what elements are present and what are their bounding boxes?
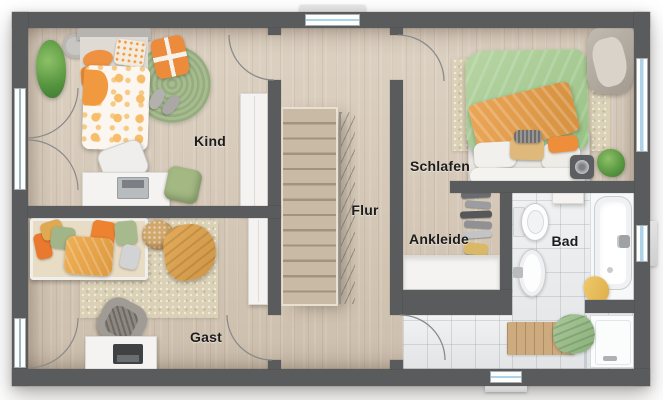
clothes-rack: [456, 188, 502, 262]
floor-cushion-green: [163, 165, 203, 205]
daybed-gast: [30, 218, 148, 280]
tub-faucet: [619, 235, 630, 248]
desk-gast: [85, 336, 157, 370]
window-sill-bad-east: [649, 221, 657, 266]
floor-plan: Kind Flur Schlafen Ankleide Bad Gast: [12, 12, 650, 386]
window-schlafen: [636, 58, 648, 152]
wall-kind-flur-stub-top: [268, 28, 281, 35]
laptop-kind-screen: [122, 180, 144, 188]
wall-flur-bad-stub-bottom: [390, 360, 403, 369]
room-label-schlafen: Schlafen: [410, 158, 470, 174]
staircase: [281, 107, 338, 306]
speaker-cone: [575, 160, 589, 174]
clothes-item: [460, 210, 492, 218]
wall-ankleide-bad: [500, 193, 512, 292]
wardrobe-gast: [248, 217, 268, 305]
wall-flur-schlafen: [390, 80, 403, 315]
pillow-gray: [119, 243, 142, 270]
pillow-orange-accent: [547, 134, 579, 153]
sink-faucet: [513, 267, 523, 278]
plant-kind: [36, 40, 66, 98]
window-gast: [14, 318, 26, 368]
toilet-seat: [527, 210, 544, 234]
sink: [513, 249, 545, 297]
wall-kind-gast: [28, 206, 281, 218]
pillow-dotted: [113, 38, 146, 68]
window-bad-south: [490, 371, 522, 383]
shower-drain: [603, 356, 617, 361]
room-label-bad: Bad: [551, 233, 578, 249]
floor-plan-canvas: Kind Flur Schlafen Ankleide Bad Gast: [0, 0, 663, 400]
room-label-kind: Kind: [194, 133, 226, 149]
toilet: [513, 203, 547, 239]
lounge-chair-drape: [587, 28, 634, 94]
clothes-item: [464, 220, 492, 228]
wall-tub-shower-divider: [585, 300, 634, 313]
floor-bathroom-entry-tile: [403, 315, 512, 369]
room-label-ankleide: Ankleide: [409, 231, 469, 247]
window-bad-east: [636, 225, 648, 262]
shower: [590, 315, 634, 368]
speaker: [570, 155, 594, 179]
wall-schlafen-bad: [450, 181, 634, 193]
laptop-kind: [117, 177, 149, 199]
window-kind-balcony-door: [14, 88, 26, 190]
wall-gast-flur-stub-bottom: [268, 360, 281, 369]
blanket-daybed: [64, 235, 115, 276]
wardrobe-ankleide: [403, 255, 500, 290]
plant-schlafen: [597, 149, 625, 177]
room-label-gast: Gast: [190, 329, 222, 345]
wall-kind-flur: [268, 80, 281, 315]
pillow-gray-striped: [514, 130, 542, 143]
wall-ankleide-south: [403, 290, 512, 315]
drape-cloth: [589, 35, 632, 89]
clothes-item: [465, 200, 491, 209]
window-flur: [305, 14, 360, 26]
wall-exterior-south: [12, 369, 650, 386]
tub-drain: [607, 267, 613, 273]
laptop-gast: [113, 344, 143, 364]
bed-kind: [75, 28, 153, 152]
wall-flur-schlafen-stub-top: [390, 28, 403, 35]
wardrobe-kind: [240, 93, 268, 215]
laptop-gast-keyboard: [117, 355, 139, 362]
pillow-green-right: [114, 220, 138, 246]
room-label-flur: Flur: [351, 202, 378, 218]
